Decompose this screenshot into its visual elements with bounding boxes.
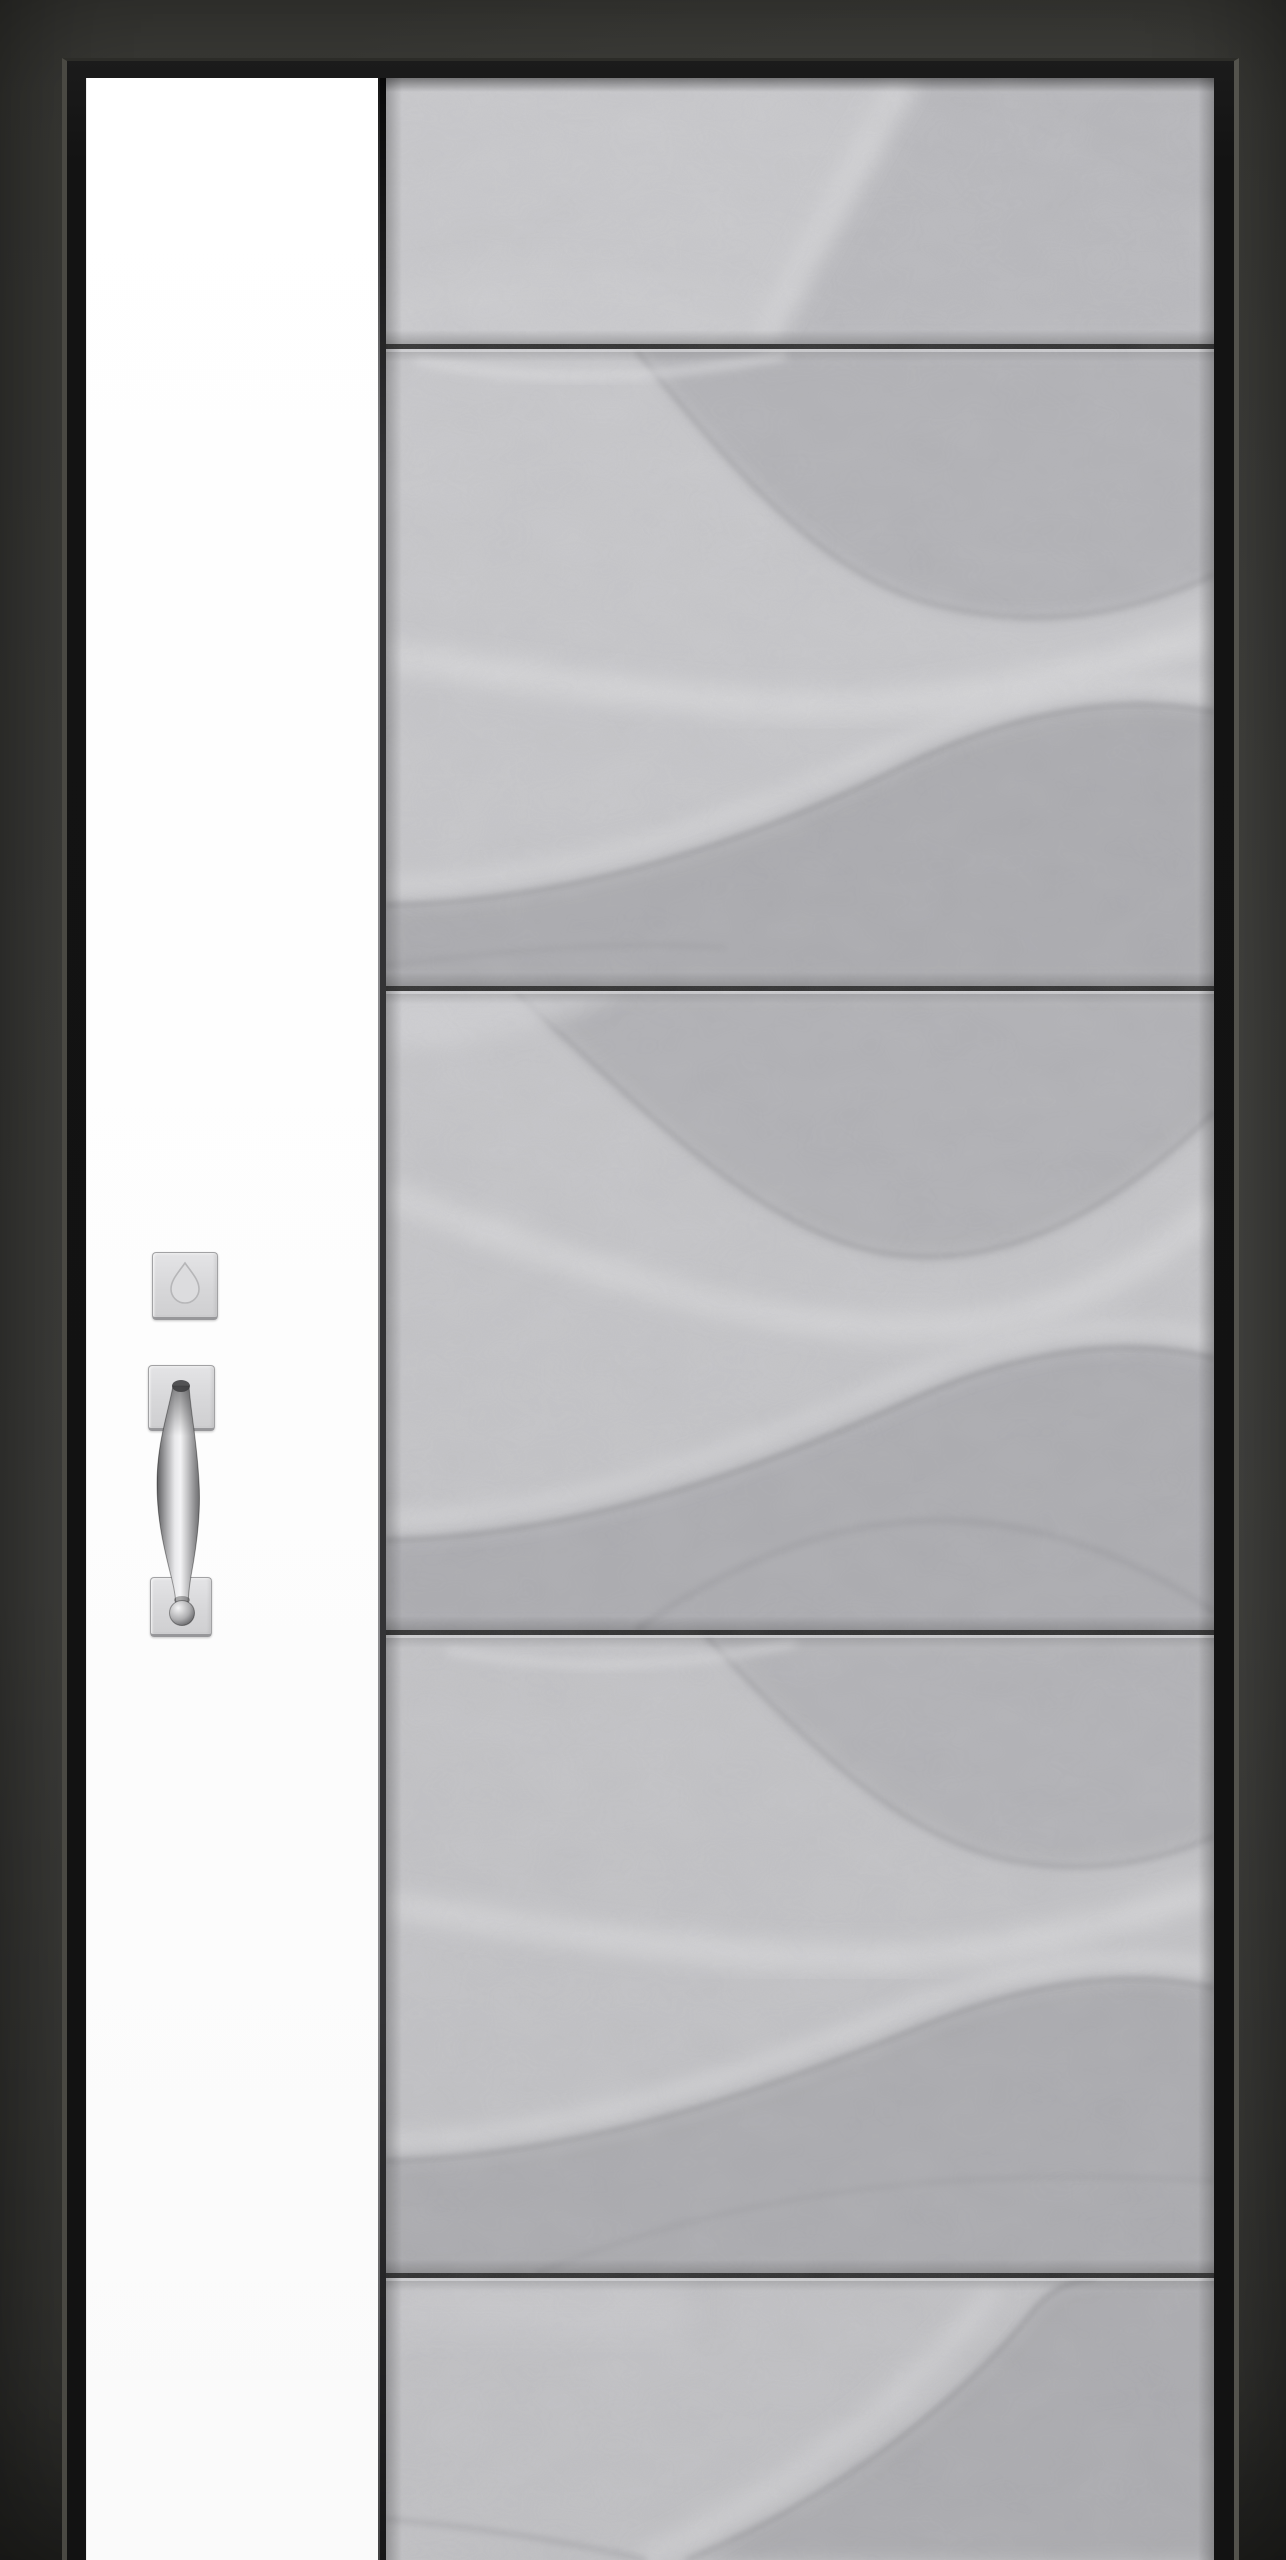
door-opening bbox=[86, 78, 1214, 2560]
concrete-grain-noise bbox=[386, 78, 1214, 2560]
door-pull-handle[interactable] bbox=[145, 1372, 225, 1640]
sidelite-divider bbox=[378, 78, 386, 2560]
deadbolt-rosette[interactable] bbox=[152, 1252, 218, 1320]
handle-socket bbox=[172, 1380, 190, 1392]
concrete-texture-svg bbox=[386, 78, 1214, 2560]
door-slab bbox=[386, 78, 1214, 2560]
sidelite-panel bbox=[86, 78, 378, 2560]
thumbturn-drop-icon bbox=[165, 1261, 205, 1309]
thumbturn-drop-path bbox=[171, 1263, 199, 1303]
door-product-photo bbox=[0, 0, 1286, 2560]
handle-ball-end[interactable] bbox=[170, 1601, 195, 1626]
